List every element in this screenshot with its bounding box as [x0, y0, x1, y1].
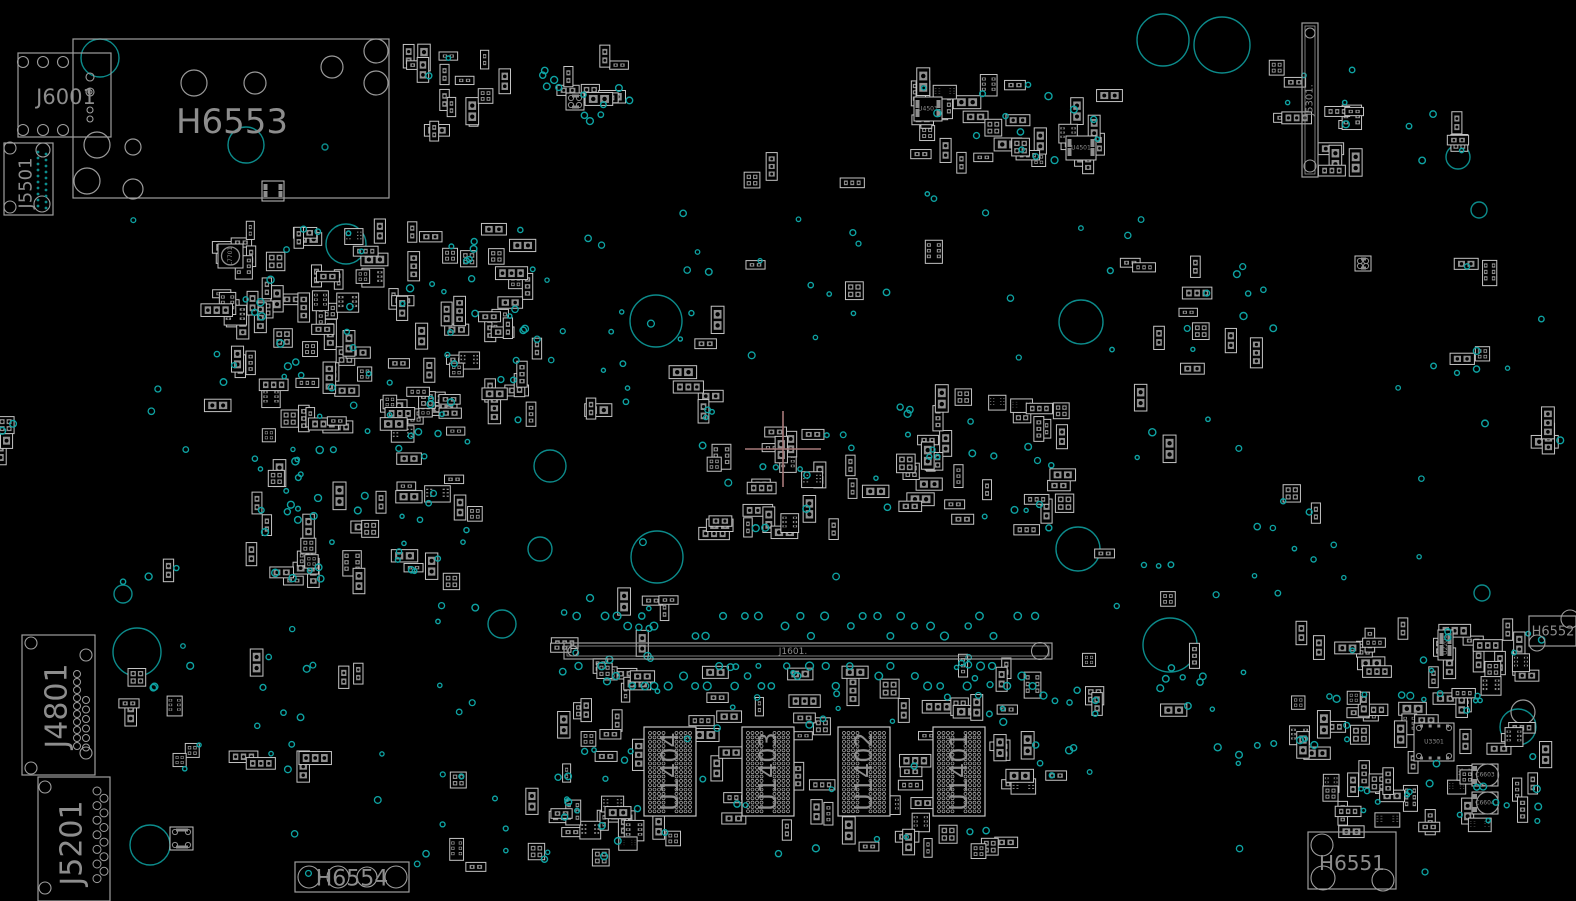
smd-part [1006, 769, 1034, 782]
smd-part [455, 76, 474, 84]
smd-part [327, 417, 346, 425]
smd-part [201, 304, 233, 317]
smd-part [1192, 323, 1209, 340]
smd-part [695, 339, 717, 349]
smd-part [268, 470, 284, 486]
smd-part [558, 712, 570, 739]
refdes-label-U1402: U1402 [850, 732, 878, 811]
smd-part [441, 302, 452, 326]
refdes-label-J6001: J6001 [34, 85, 96, 109]
smd-part [450, 772, 466, 788]
smd-part [408, 252, 420, 281]
smd-part [262, 429, 275, 442]
smd-part [167, 696, 182, 716]
smd-part [1134, 384, 1146, 411]
smd-part [859, 842, 879, 851]
smd-part [466, 98, 479, 125]
smd-part [600, 45, 610, 67]
smd-part [630, 671, 654, 682]
smd-part [1447, 135, 1468, 145]
smd-part [963, 111, 988, 122]
smd-part [945, 500, 965, 509]
smd-part [794, 732, 812, 740]
smd-part [1250, 338, 1262, 368]
smd-part [610, 61, 629, 69]
smd-part [612, 710, 622, 732]
smd-part [1050, 469, 1076, 481]
smd-part [924, 839, 932, 858]
smd-part [586, 398, 595, 419]
smd-part [789, 695, 820, 708]
smd-part [840, 178, 864, 188]
smd-part [898, 780, 922, 790]
smd-part [479, 312, 501, 322]
smd-part [266, 252, 284, 270]
smd-part [809, 780, 834, 790]
smd-part [1528, 773, 1538, 794]
smd-part [564, 67, 573, 87]
smd-part [1481, 677, 1501, 696]
smd-part [388, 359, 409, 368]
smd-part [581, 699, 592, 722]
smd-part [443, 248, 458, 263]
smd-part [380, 418, 407, 431]
smd-part [1483, 260, 1497, 285]
smd-part [952, 514, 974, 524]
smd-part [717, 711, 742, 722]
smd-part [1014, 525, 1040, 535]
smd-part [1503, 619, 1513, 640]
smd-part [940, 138, 951, 162]
smd-part [1026, 403, 1052, 413]
smd-part [989, 395, 1006, 410]
smd-part [1318, 165, 1345, 176]
component-U1403[interactable]: U1403 [742, 727, 794, 816]
smd-cluster-single-a [299, 752, 331, 765]
smd-part [711, 756, 723, 781]
smd-part [597, 663, 612, 678]
smd-part [595, 751, 617, 761]
smd-part [673, 381, 703, 393]
refdes-label-H6551: H6551 [1319, 851, 1385, 875]
smd-part [468, 507, 483, 522]
smd-part [170, 827, 193, 850]
smd-part [1350, 725, 1369, 744]
smd-part [1296, 621, 1307, 644]
pin-dot [37, 175, 40, 178]
smd-part [1355, 256, 1371, 271]
pin-dot [37, 205, 40, 208]
smd-part [1359, 761, 1370, 787]
smd-part [1363, 638, 1386, 647]
smd-part [619, 837, 637, 850]
refdes-label-U1404: U1404 [656, 732, 684, 811]
component-U3301[interactable]: U3301 [1414, 723, 1454, 761]
smd-part [1347, 691, 1360, 704]
smd-part [1460, 729, 1471, 753]
smd-part [454, 495, 466, 520]
smd-part [294, 227, 303, 248]
smd-part [482, 388, 507, 400]
refdes-label-J5201: J5201 [55, 800, 90, 887]
smd-part [1452, 112, 1462, 134]
smd-part [358, 367, 372, 381]
smd-part [669, 366, 697, 379]
smd-part [1450, 353, 1474, 364]
smd-part [1005, 80, 1026, 89]
smd-part [489, 249, 505, 265]
smd-part [1540, 742, 1552, 768]
smd-part [744, 172, 760, 188]
smd-part [298, 293, 310, 322]
smd-part [996, 667, 1007, 691]
smd-part [911, 150, 931, 159]
smd-part [1345, 107, 1364, 115]
smd-part [339, 666, 349, 688]
smd-part [356, 270, 370, 284]
smd-part [917, 68, 930, 96]
smd-part [128, 669, 146, 687]
smd-part [689, 716, 714, 726]
smd-part [1154, 326, 1165, 349]
smd-part [450, 838, 464, 860]
smd-part [711, 306, 724, 333]
smd-part [957, 152, 966, 173]
smd-part [1048, 480, 1071, 490]
smd-part [1082, 653, 1095, 666]
smd-part [719, 747, 744, 758]
smd-part [252, 492, 262, 514]
smd-part [632, 739, 644, 770]
smd-part [581, 732, 596, 747]
smd-part [1292, 696, 1305, 709]
smd-part [503, 318, 512, 339]
pin-dot [37, 169, 40, 172]
pin-dot [37, 187, 40, 190]
smd-part [794, 713, 816, 723]
smd-part [862, 485, 888, 497]
smd-part [829, 519, 838, 540]
smd-part [481, 223, 506, 235]
smd-part [897, 454, 916, 473]
pin-dot [45, 183, 48, 186]
smd-part [1055, 494, 1073, 512]
smd-part [1419, 822, 1440, 831]
smd-part [499, 69, 510, 94]
smd-part [846, 455, 855, 476]
smd-part [481, 50, 489, 69]
smd-part [983, 480, 992, 500]
smd-part [1514, 632, 1525, 656]
smd-part [407, 387, 430, 396]
pin-dot [37, 151, 40, 154]
smd-part [312, 324, 334, 334]
smd-part [1225, 328, 1236, 352]
component-U1401[interactable]: U1401 [933, 727, 985, 816]
smd-part [580, 821, 601, 839]
smd-part [1349, 149, 1362, 176]
refdes-label-J5301: J5301. [1305, 84, 1316, 117]
smd-part [333, 482, 346, 510]
component-C6603[interactable]: C6603 [1472, 764, 1499, 786]
smd-part [974, 153, 993, 161]
smd-part [1133, 263, 1156, 272]
smd-part [447, 427, 465, 435]
smd-part [618, 588, 631, 615]
smd-part [1518, 797, 1528, 822]
smd-part [354, 663, 363, 684]
pin-dot [37, 193, 40, 196]
pin-dot [45, 159, 48, 162]
smd-part [985, 119, 1002, 136]
pin-dot [45, 153, 48, 156]
refdes-label: C6603 [1475, 772, 1495, 779]
smd-part [353, 568, 365, 593]
smd-part [1505, 728, 1523, 747]
smd-part [1512, 654, 1529, 672]
smd-part [1053, 403, 1069, 419]
smd-part [374, 219, 385, 243]
smd-part [517, 361, 527, 387]
smd-part [605, 807, 631, 819]
pin-dot [37, 199, 40, 202]
smd-part [440, 64, 449, 84]
smd-part [1095, 549, 1115, 558]
smd-part [397, 453, 422, 464]
smd-part [925, 240, 942, 263]
smd-part [1335, 806, 1361, 816]
smd-part [408, 222, 417, 242]
smd-part [562, 828, 582, 837]
smd-part [396, 491, 422, 503]
smd-part [1097, 90, 1123, 102]
smd-part [532, 338, 541, 359]
smd-part [1313, 636, 1324, 660]
smd-part [1363, 666, 1392, 678]
smd-part [250, 649, 263, 676]
smd-part [296, 378, 319, 387]
smd-part [845, 282, 863, 300]
smd-part [1024, 672, 1041, 698]
smd-part [397, 296, 408, 320]
smd-part [766, 153, 777, 181]
smd-part [231, 346, 243, 372]
smd-part [659, 596, 678, 604]
smd-part [299, 752, 331, 765]
smd-part [376, 491, 386, 513]
smd-part [900, 767, 922, 777]
smd-part [900, 754, 931, 767]
smd-part [447, 97, 456, 116]
smd-part [1317, 711, 1330, 739]
refdes-label-U1403: U1403 [754, 732, 782, 811]
smd-part [343, 331, 355, 357]
pin-dot [45, 177, 48, 180]
pin-dot [45, 201, 48, 204]
smd-part [335, 385, 359, 396]
smd-part [802, 472, 823, 488]
smd-part [1394, 721, 1406, 747]
smd-part [842, 666, 868, 678]
smd-part [1181, 363, 1205, 374]
smd-part [1542, 407, 1555, 439]
smd-part [707, 457, 721, 471]
smd-cluster-right-edge-pair [1542, 407, 1555, 454]
smd-part [1006, 115, 1030, 126]
smd-part [899, 501, 922, 511]
refdes-label-H6553: H6553 [176, 102, 288, 142]
pin-dot [45, 189, 48, 192]
smd-part [600, 730, 621, 739]
smd-part [445, 475, 464, 483]
refdes-label-J4801: J4801 [40, 663, 75, 750]
smd-part [246, 758, 275, 770]
smd-part [1034, 417, 1044, 442]
smd-part [397, 482, 416, 490]
smd-part [939, 825, 957, 843]
component-C6604[interactable]: C6604 [1472, 792, 1499, 814]
pin-dot [37, 163, 40, 166]
refdes-label-H6552: H6552 [1532, 625, 1575, 640]
smd-part [1399, 702, 1427, 715]
refdes-label: C6604 [1475, 800, 1495, 807]
smd-part [1485, 661, 1501, 677]
smd-part [813, 718, 830, 735]
smd-part [454, 296, 466, 325]
smd-part [916, 478, 942, 490]
boardview-stage: U4503U4501U2201U3301C6603C6604L7701U1404… [0, 0, 1576, 901]
component-U1402[interactable]: U1402 [838, 727, 890, 816]
component-L7701[interactable]: L7701 [218, 244, 243, 268]
smd-part [301, 538, 316, 553]
smd-part [781, 514, 799, 533]
smd-part [702, 666, 728, 678]
smd-part [922, 700, 953, 713]
smd-part [316, 271, 339, 281]
smd-part [802, 429, 824, 439]
smd-part [1473, 649, 1484, 672]
smd-part [478, 89, 493, 104]
smd-part [1323, 786, 1338, 801]
smd-part [383, 395, 397, 409]
smd-part [1398, 618, 1408, 639]
smd-part [1297, 732, 1309, 759]
smd-part [443, 573, 459, 589]
smd-part [498, 297, 523, 308]
smd-part [824, 802, 833, 825]
smd-part [585, 92, 613, 105]
smd-part [811, 800, 822, 824]
refdes-label-J1601: J1601. [778, 647, 807, 657]
smd-part [353, 246, 378, 256]
refdes-label-J5501: J5501 [16, 157, 37, 209]
refdes-label: U2201 [1442, 635, 1449, 655]
smd-part [1191, 256, 1201, 277]
smd-part [842, 817, 855, 844]
smd-part [848, 479, 857, 499]
smd-part [1182, 287, 1212, 299]
smd-part [1375, 813, 1400, 827]
smd-part [246, 221, 254, 239]
smd-part [1383, 768, 1394, 795]
smd-part [744, 518, 753, 537]
refdes-label: U3301 [1424, 739, 1444, 746]
smd-part [898, 698, 909, 722]
component-U4501[interactable]: U4501 [1066, 136, 1096, 160]
smd-part [747, 482, 776, 494]
smd-part [1468, 818, 1491, 832]
component-U1404[interactable]: U1404 [644, 727, 696, 816]
smd-part [424, 358, 435, 382]
smd-part [425, 486, 451, 502]
smd-part [1473, 640, 1502, 652]
smd-part [1335, 642, 1360, 654]
smd-part [419, 232, 442, 242]
smd-part [707, 693, 728, 703]
smd-part [312, 291, 328, 311]
refdes-label: L7701 [227, 247, 234, 266]
smd-part [416, 323, 428, 349]
smd-part [526, 788, 538, 814]
smd-part [955, 389, 971, 405]
pin-dot [37, 181, 40, 184]
smd-part [1348, 773, 1359, 797]
smd-part [246, 543, 257, 566]
smd-part [303, 342, 318, 357]
smd-part [1161, 704, 1187, 716]
smd-part [362, 520, 379, 537]
smd-part [903, 829, 915, 855]
smd-part [163, 559, 173, 582]
smd-cluster-left-mid-sparse [163, 559, 173, 582]
pin-dot [45, 165, 48, 168]
smd-part [709, 516, 732, 526]
smd-part [430, 121, 439, 141]
pin-dot [45, 195, 48, 198]
smd-part [526, 402, 536, 426]
smd-part [953, 96, 981, 109]
smd-part [653, 814, 665, 839]
smd-part [303, 514, 314, 539]
smd-part [262, 515, 271, 536]
smd-part [1189, 643, 1199, 668]
smd-part [1269, 60, 1284, 75]
smd-part [971, 844, 986, 859]
smd-part [1179, 308, 1197, 316]
smd-part [466, 862, 486, 871]
smd-part [782, 820, 791, 840]
smd-part [246, 351, 255, 375]
boardview-canvas[interactable]: U4503U4501U2201U3301C6603C6604L7701U1404… [0, 0, 1576, 901]
refdes-label-U1401: U1401 [945, 732, 973, 811]
smd-part [1056, 425, 1067, 449]
smd-part [0, 417, 14, 434]
smd-part [980, 75, 997, 96]
smd-part [119, 699, 139, 708]
smd-part [173, 753, 186, 766]
smd-part [911, 798, 935, 809]
pin-dot [37, 157, 40, 160]
smd-part [1161, 592, 1176, 607]
smd-part [994, 735, 1006, 761]
refdes-label-H6554: H6554 [316, 867, 389, 892]
smd-part [1163, 435, 1176, 462]
smd-part [954, 465, 963, 488]
smd-part [281, 410, 298, 427]
smd-part [935, 385, 948, 412]
pin-dot [45, 207, 48, 210]
smd-part [510, 239, 536, 251]
